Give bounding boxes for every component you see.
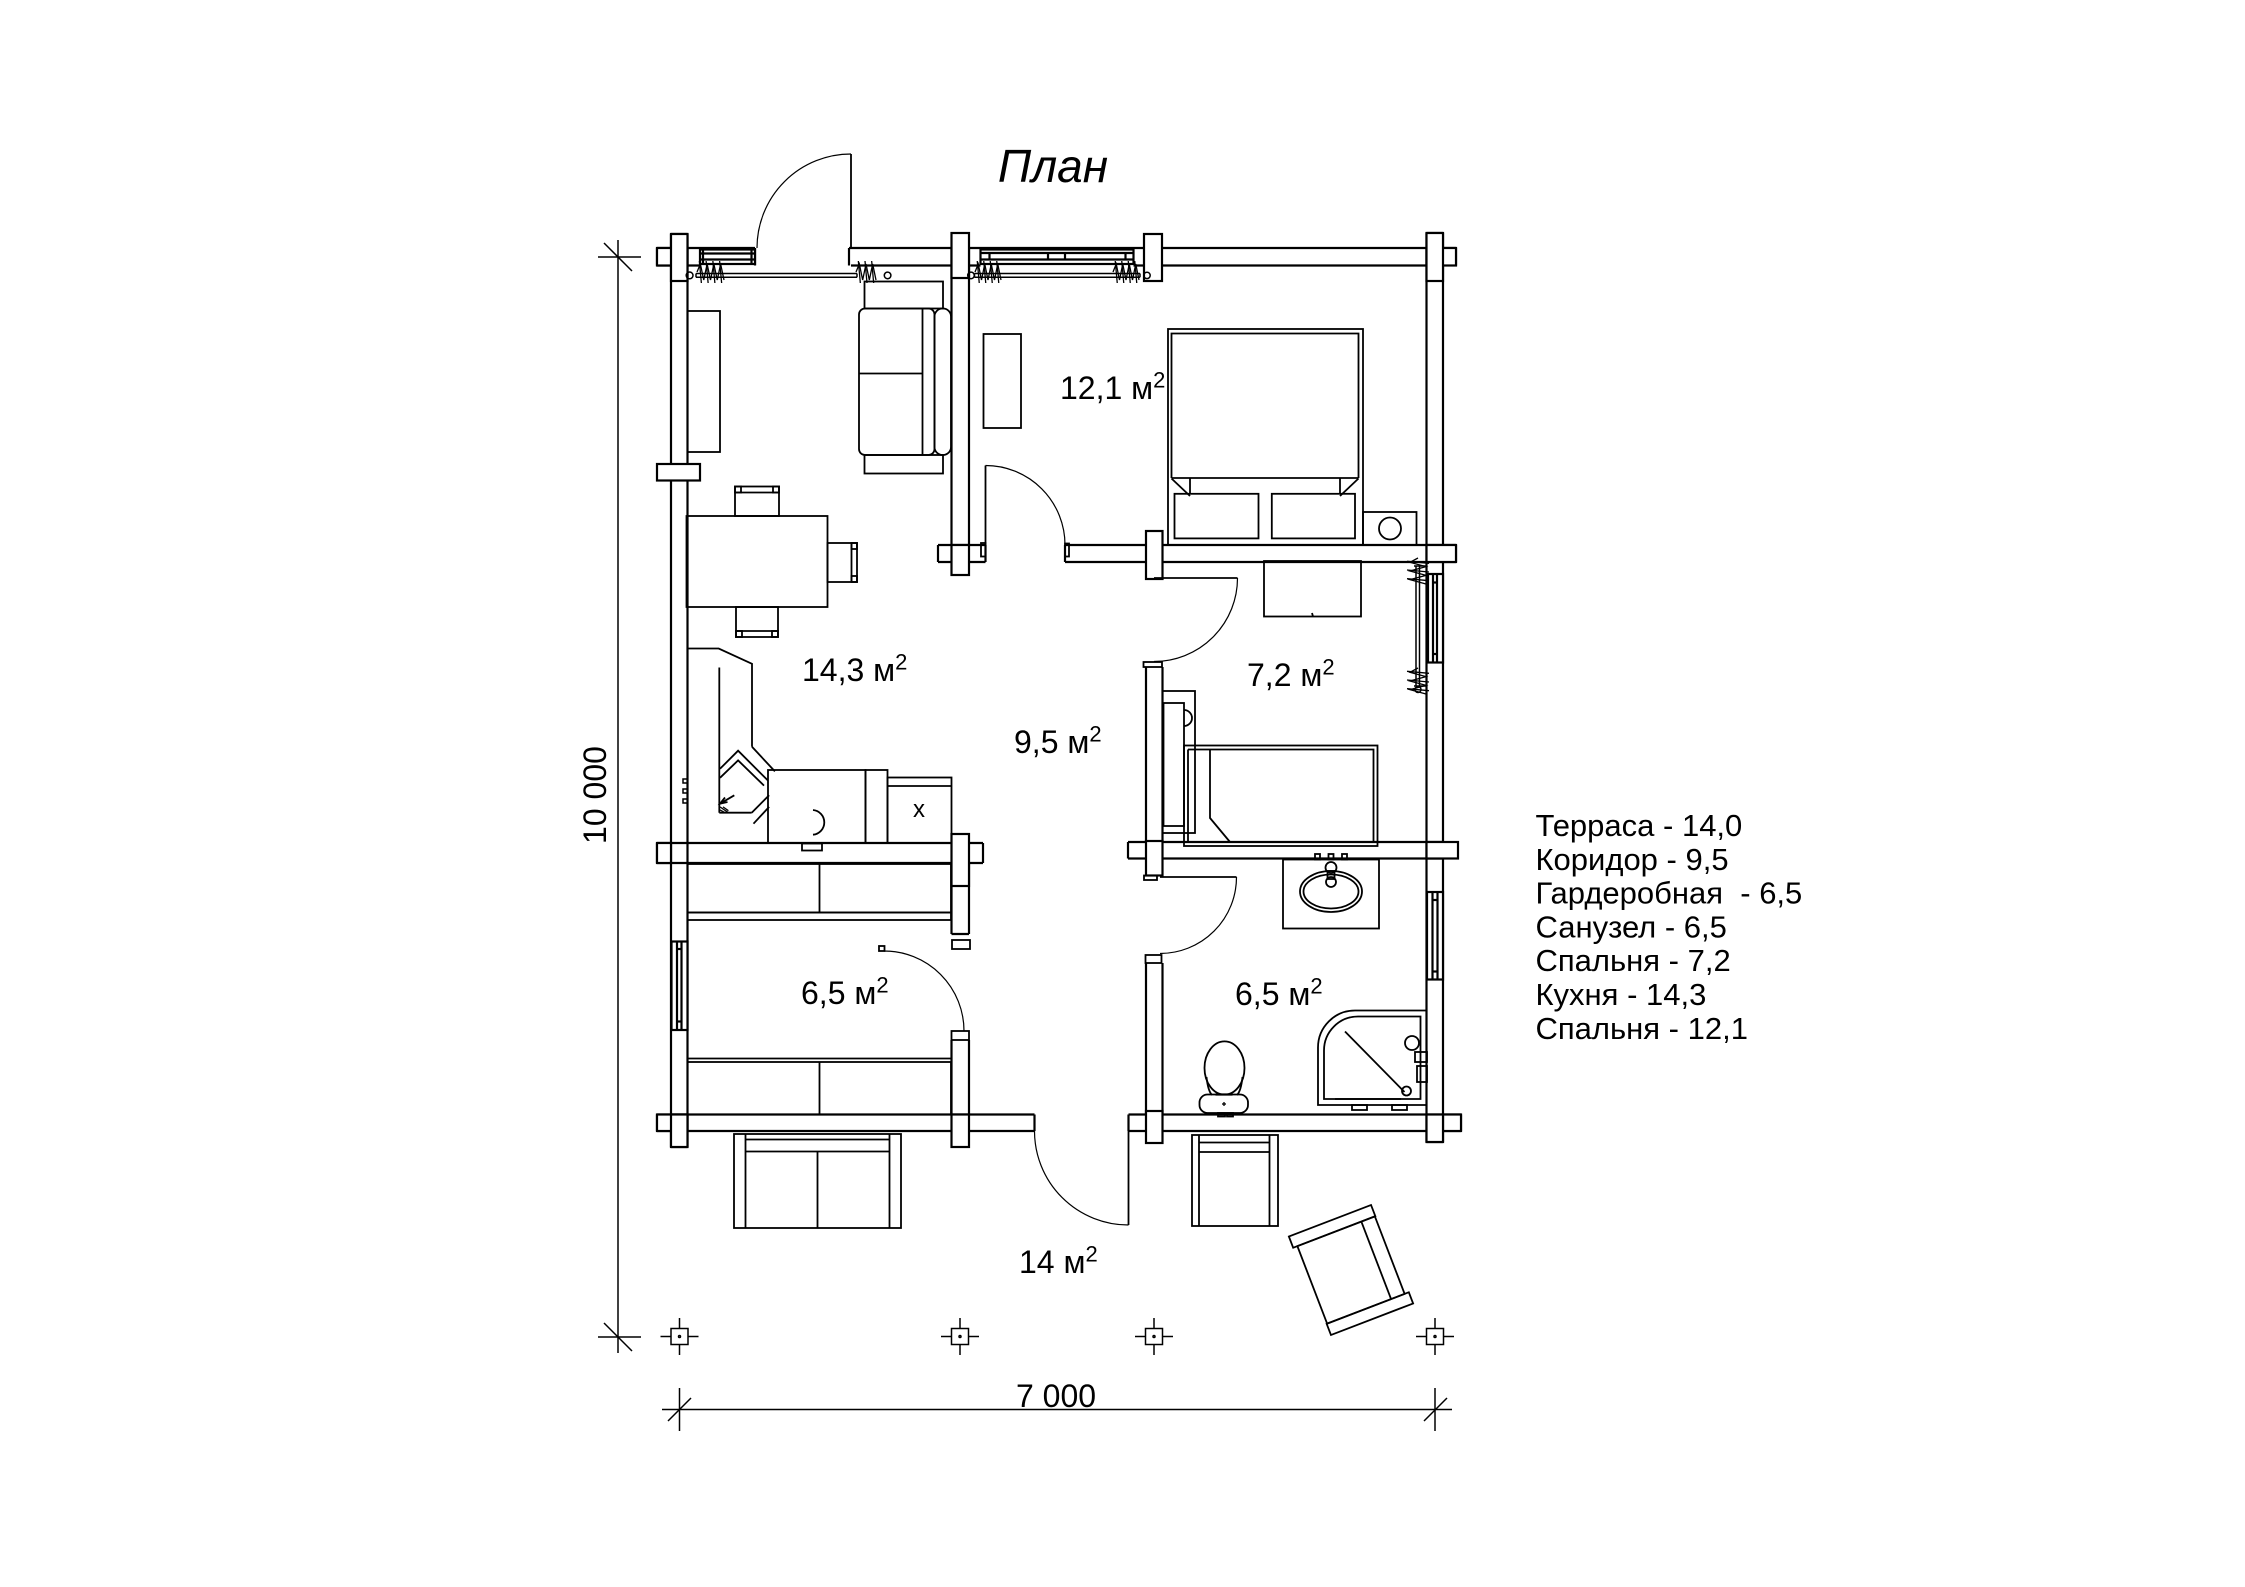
svg-text:Терраса - 14,0: Терраса - 14,0: [1536, 808, 1743, 843]
svg-text:7,2 м2: 7,2 м2: [1247, 655, 1335, 694]
svg-text:Гардеробная - 6,5: Гардеробная - 6,5: [1536, 876, 1803, 911]
svg-text:Коридор - 9,5: Коридор - 9,5: [1536, 842, 1729, 877]
svg-text:6,5 м2: 6,5 м2: [1235, 974, 1323, 1013]
svg-text:Кухня - 14,3: Кухня - 14,3: [1536, 977, 1707, 1012]
svg-text:12,1 м2: 12,1 м2: [1060, 368, 1165, 407]
svg-text:Санузел - 6,5: Санузел - 6,5: [1536, 909, 1727, 944]
svg-text:6,5 м2: 6,5 м2: [801, 973, 889, 1012]
svg-text:10 000: 10 000: [577, 746, 613, 844]
svg-text:Спальня - 7,2: Спальня - 7,2: [1536, 943, 1731, 978]
svg-text:9,5 м2: 9,5 м2: [1014, 722, 1102, 761]
svg-text:14,3 м2: 14,3 м2: [802, 650, 907, 689]
svg-text:Спальня - 12,1: Спальня - 12,1: [1536, 1011, 1748, 1046]
svg-text:x: x: [913, 796, 925, 823]
svg-text:План: План: [998, 140, 1108, 192]
svg-text:7 000: 7 000: [1016, 1378, 1096, 1414]
